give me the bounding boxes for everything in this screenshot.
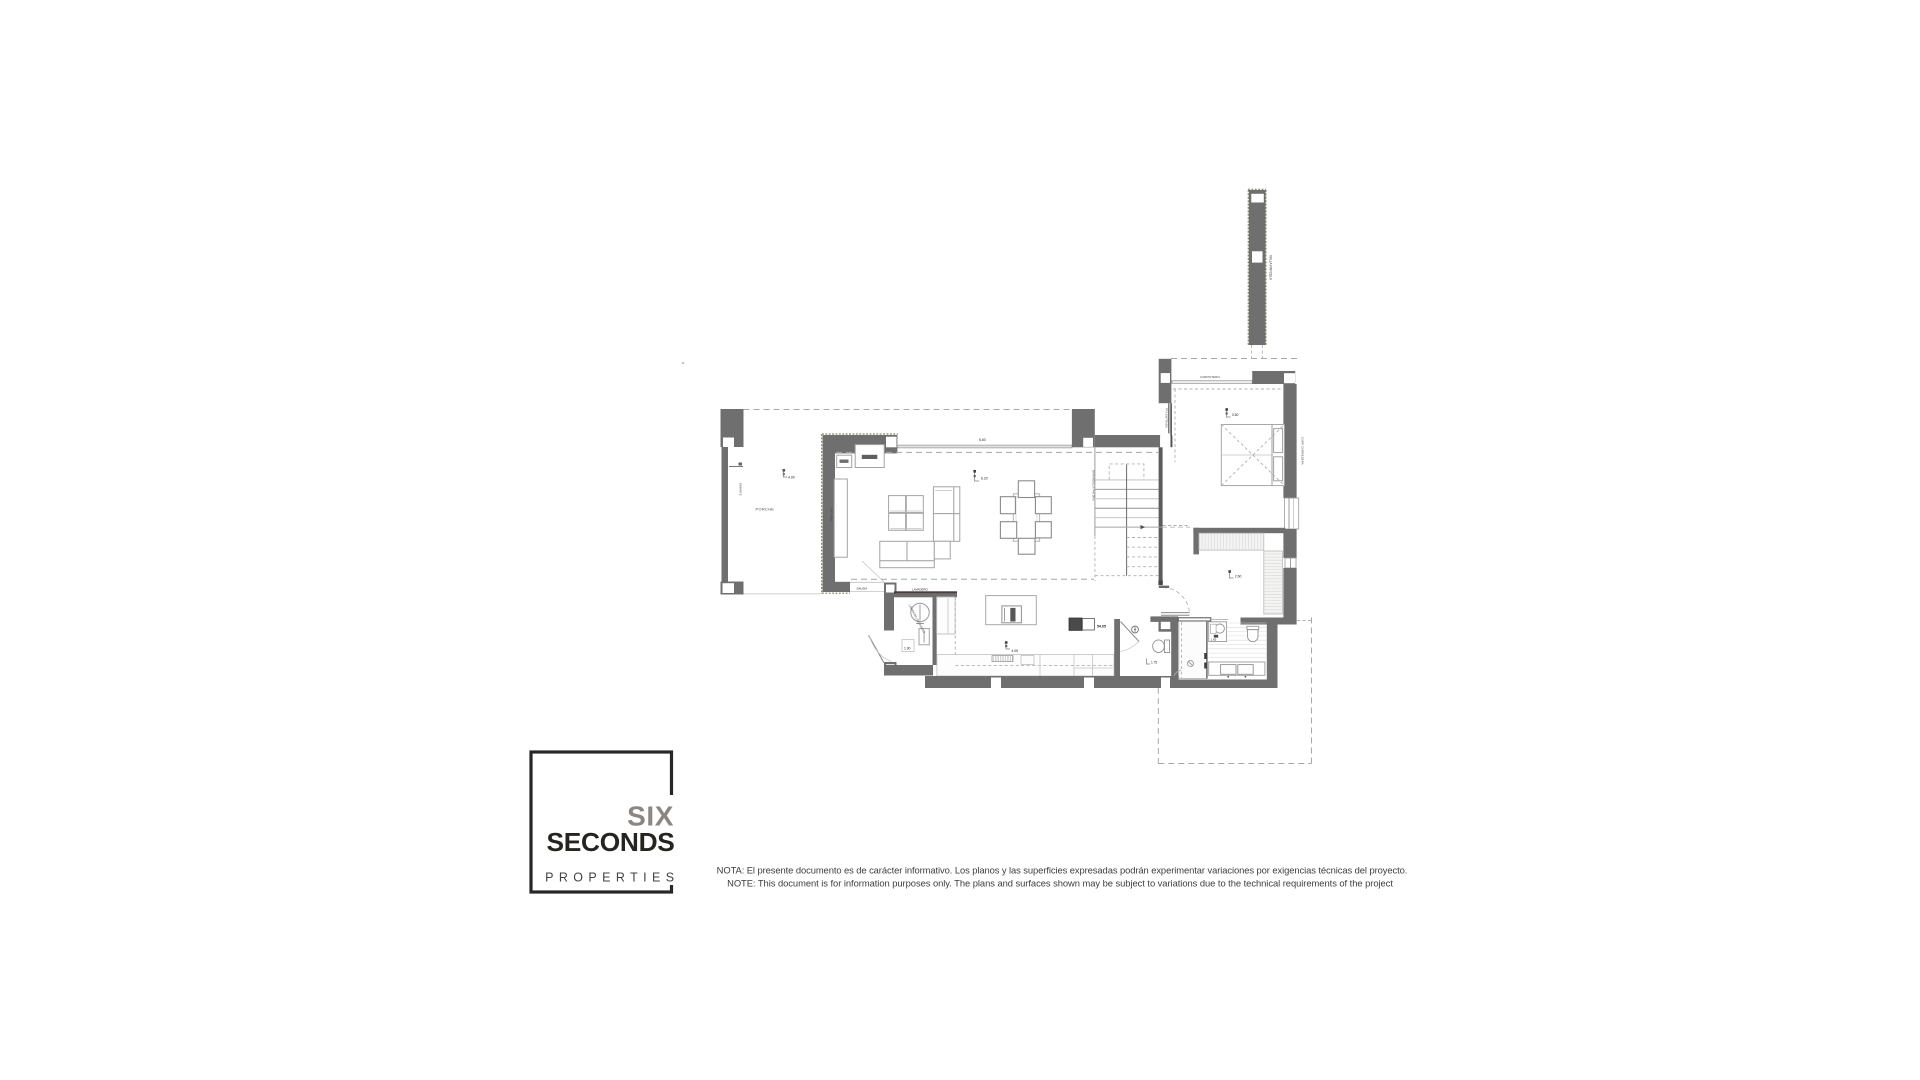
svg-text:LAVADERO: LAVADERO bbox=[912, 588, 929, 592]
svg-text:PTA ENTRADA: PTA ENTRADA bbox=[1165, 408, 1169, 428]
svg-text:1.75: 1.75 bbox=[1151, 661, 1157, 665]
svg-text:4.05: 4.05 bbox=[1011, 649, 1018, 653]
svg-text:PORCHE: PORCHE bbox=[756, 506, 775, 511]
svg-text:VALLA PARCELA: VALLA PARCELA bbox=[1269, 255, 1273, 281]
svg-text:4.00: 4.00 bbox=[788, 476, 795, 480]
svg-text:CARPINTERIA: CARPINTERIA bbox=[1200, 375, 1220, 379]
svg-text:NOTA: El presente documento es: NOTA: El presente documento es de caráct… bbox=[717, 865, 1408, 876]
svg-text:SECONDS: SECONDS bbox=[547, 827, 675, 857]
svg-text:FACHADA: FACHADA bbox=[830, 508, 834, 521]
svg-text:BARANDILLA H=0.90m: BARANDILLA H=0.90m bbox=[1092, 470, 1096, 501]
svg-text:5.60: 5.60 bbox=[979, 438, 986, 442]
svg-text:3.50: 3.50 bbox=[1232, 413, 1239, 417]
svg-text:54.05: 54.05 bbox=[1097, 625, 1106, 629]
svg-text:1.65: 1.65 bbox=[1211, 638, 1217, 642]
svg-text:2.60: 2.60 bbox=[1235, 575, 1242, 579]
svg-text:1.90: 1.90 bbox=[904, 647, 911, 651]
svg-text:BAJANTE: BAJANTE bbox=[739, 483, 743, 496]
svg-text:CARP. CORREDERA: CARP. CORREDERA bbox=[1301, 437, 1305, 465]
svg-text:SALIDA: SALIDA bbox=[857, 587, 868, 591]
svg-text:PROPERTIES: PROPERTIES bbox=[545, 870, 679, 884]
svg-text:6.20: 6.20 bbox=[981, 477, 988, 481]
svg-text:NOTE: This document is for inf: NOTE: This document is for information p… bbox=[727, 877, 1393, 888]
